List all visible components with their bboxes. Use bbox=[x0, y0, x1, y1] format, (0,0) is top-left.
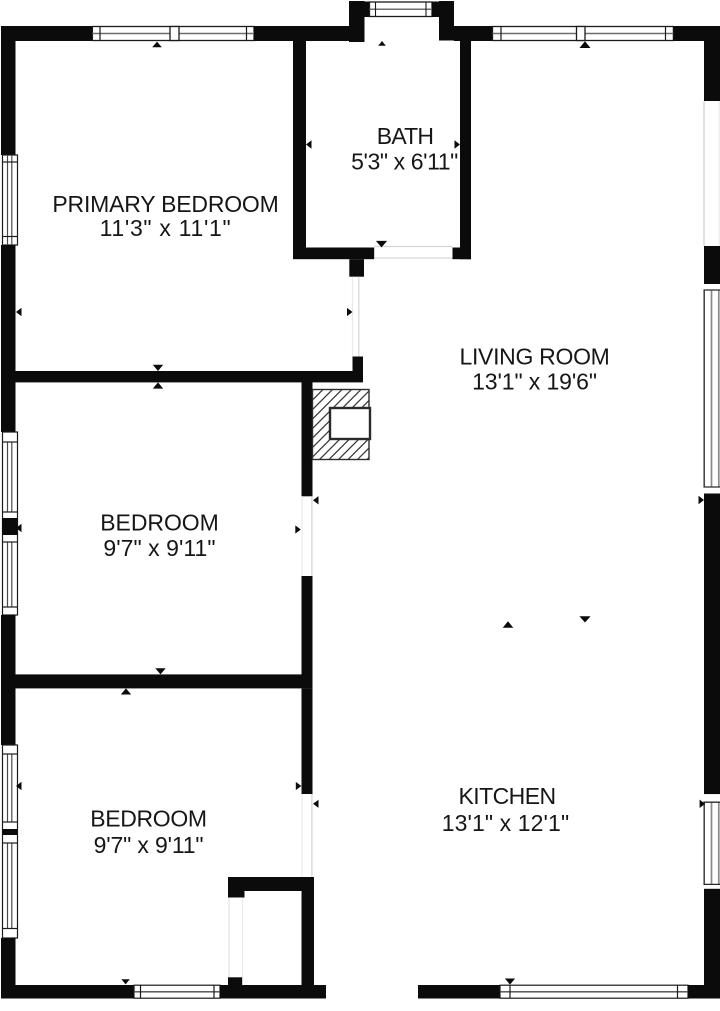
svg-text:9'7" x 9'11": 9'7" x 9'11" bbox=[94, 832, 204, 858]
svg-text:BEDROOM: BEDROOM bbox=[90, 806, 206, 832]
svg-text:13'1" x 19'6": 13'1" x 19'6" bbox=[472, 369, 597, 395]
svg-text:PRIMARY BEDROOM: PRIMARY BEDROOM bbox=[52, 191, 278, 217]
svg-text:BEDROOM: BEDROOM bbox=[100, 510, 219, 536]
svg-text:11'3" x 11'1": 11'3" x 11'1" bbox=[100, 215, 232, 241]
svg-text:KITCHEN: KITCHEN bbox=[458, 783, 555, 809]
svg-text:5'3" x 6'11": 5'3" x 6'11" bbox=[351, 149, 458, 175]
svg-text:13'1" x 12'1": 13'1" x 12'1" bbox=[442, 810, 569, 836]
svg-text:LIVING ROOM: LIVING ROOM bbox=[459, 344, 609, 370]
svg-text:9'7" x 9'11": 9'7" x 9'11" bbox=[103, 535, 215, 561]
svg-text:BATH: BATH bbox=[377, 123, 433, 149]
